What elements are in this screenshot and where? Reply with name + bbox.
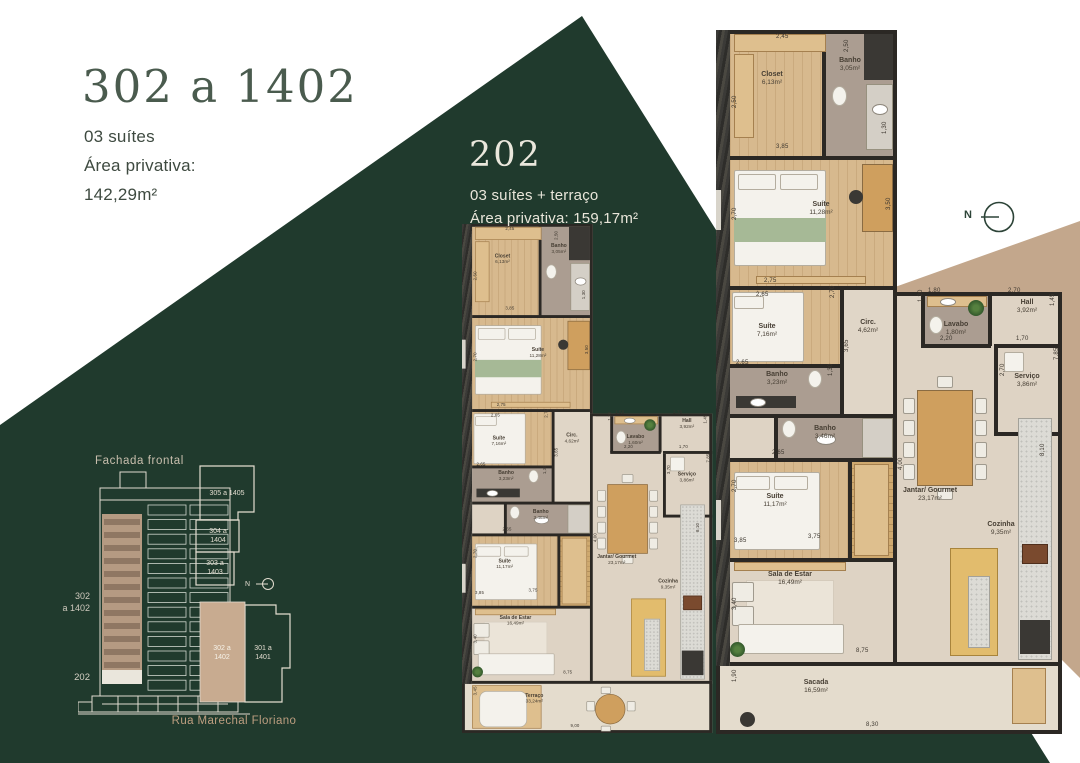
- room-area: 11,17m²: [740, 501, 810, 509]
- room-area: 16,49m²: [485, 621, 546, 627]
- dimension-label: 8,75: [563, 671, 572, 675]
- room-name: Cozinha: [644, 578, 692, 585]
- room-area: 16,49m²: [748, 579, 832, 587]
- chair: [649, 522, 658, 534]
- unit-302-area-label: Área privativa:: [84, 151, 196, 180]
- wall: [921, 296, 925, 346]
- dimension-label: 1,20: [918, 290, 924, 302]
- wall: [472, 409, 590, 412]
- dimension-label: 2,50: [555, 231, 559, 240]
- elevation-window: [148, 607, 186, 617]
- room-label-terraco: Terraço33,24m²: [498, 693, 570, 706]
- dimension-label: 4,00: [594, 533, 598, 542]
- elevation-window: [148, 680, 186, 690]
- room-area: 6,13m²: [732, 79, 812, 87]
- room-label-banho-1: Banho3,05m²: [537, 243, 580, 256]
- dimension-label: 3,50: [585, 345, 589, 354]
- room-area: 11,28m²: [786, 209, 856, 217]
- window-slit: [462, 340, 466, 369]
- chair: [597, 538, 606, 550]
- elevation-window: [148, 666, 186, 676]
- unit-302-subtitle: 03 suítes Área privativa: 142,29m²: [84, 122, 196, 210]
- room-area: 9,35m²: [968, 529, 1034, 537]
- plant: [644, 419, 656, 431]
- wall: [994, 348, 998, 434]
- room-name: Circ.: [838, 318, 898, 327]
- dimension-label: 7,85: [706, 454, 710, 463]
- room-label-hall: Hall3,92m²: [666, 418, 708, 431]
- room-area: 23,17m²: [892, 495, 968, 503]
- dimension-label: 2,75: [497, 403, 506, 407]
- dimension-label: 8,10: [1040, 444, 1046, 456]
- dimension-label: 2,65: [476, 463, 485, 467]
- room-area: 4,62m²: [838, 327, 898, 335]
- chair: [597, 522, 606, 534]
- dimension-label: 1,30: [582, 290, 586, 299]
- wall: [663, 454, 666, 516]
- dimension-label: 2,70: [474, 549, 478, 558]
- room-label-suite-2: Suíte7,16m²: [474, 435, 525, 448]
- room-label-closet: Closet6,13m²: [474, 253, 532, 266]
- room-area: 9,35m²: [644, 585, 692, 591]
- sink: [872, 104, 888, 115]
- sofa: [738, 624, 844, 654]
- dimension-label: 2,65: [491, 413, 500, 417]
- washer: [1004, 352, 1024, 372]
- window-slit: [462, 564, 466, 593]
- room-area: 3,46m²: [516, 515, 567, 521]
- dimension-label: 2,70: [732, 480, 738, 492]
- dimension-label: 1,45: [1050, 294, 1056, 306]
- room-label-servico: Serviço3,86m²: [666, 471, 708, 484]
- dimension-label: 3,40: [474, 634, 478, 643]
- pillow: [504, 546, 529, 556]
- room-label-suite-1: Suíte11,28m²: [513, 347, 564, 360]
- wall: [921, 344, 991, 348]
- chair: [649, 538, 658, 550]
- dimension-label: 1,30: [543, 465, 547, 474]
- room-label-jantar-gourmet: Jantar/ Gourmet23,17m²: [589, 554, 644, 567]
- dimension-label: 3,85: [475, 591, 484, 595]
- bath-counter: [570, 263, 590, 311]
- room-area: 11,28m²: [513, 353, 564, 359]
- wall: [988, 296, 992, 346]
- keyplan-unit-302-highlight: [200, 602, 245, 702]
- wall: [730, 458, 893, 462]
- keyplan-north-letter: N: [245, 581, 250, 588]
- pillow: [508, 328, 535, 340]
- dimension-label: 2,50: [474, 271, 478, 280]
- room-name: Sacada: [766, 678, 866, 687]
- dimension-label: 3,75: [529, 588, 538, 592]
- room-label-suite-1: Suíte11,28m²: [786, 200, 856, 218]
- unit-202-subtitle: 03 suítes + terraço Área privativa: 159,…: [470, 184, 638, 231]
- north-compass: N: [940, 192, 1030, 249]
- room-label-sacada: Sacada16,59m²: [766, 678, 866, 696]
- dimension-label: 1,90: [732, 670, 738, 682]
- floor-plan-202: Closet6,13m²Banho3,05m²Suíte11,28m²Suíte…: [462, 224, 712, 734]
- plant: [968, 300, 984, 316]
- chair: [649, 490, 658, 502]
- room-area: 3,92m²: [666, 424, 708, 430]
- sofa: [478, 653, 555, 675]
- chair: [975, 464, 987, 480]
- dimension-label: 3,85: [734, 538, 746, 544]
- dimension-label: 2,65: [772, 450, 784, 456]
- wall: [848, 460, 852, 560]
- cooktop: [682, 651, 704, 676]
- exterior-wall-texture: [716, 30, 730, 666]
- oven: [1022, 544, 1048, 564]
- sink: [487, 490, 499, 497]
- room-area: 7,16m²: [732, 331, 802, 339]
- wall: [663, 451, 712, 454]
- room-label-banho-2: Banho3,23m²: [481, 470, 532, 483]
- washer: [670, 457, 684, 471]
- planter: [740, 712, 755, 727]
- room-area: 11,17m²: [479, 565, 530, 571]
- key-plan: N 305 a 1405 304 a 1404 303 a 1403 302 a…: [192, 462, 302, 710]
- round-table: [595, 694, 625, 724]
- dimension-label: 2,75: [764, 278, 776, 284]
- toilet: [832, 86, 847, 106]
- room-label-sala-de-estar: Sala de Estar16,49m²: [485, 614, 546, 627]
- room-area: 1,80m²: [926, 329, 986, 337]
- island-counter: [644, 619, 660, 671]
- room-area: 3,05m²: [537, 249, 580, 255]
- room-label-banho-2: Banho3,23m²: [742, 370, 812, 388]
- dimension-label: 3,85: [505, 306, 514, 310]
- dimension-label: 1,80: [928, 288, 940, 294]
- dimension-label: 1,50: [615, 411, 624, 415]
- chair: [975, 398, 987, 414]
- keyplan-unit-304: [196, 520, 239, 552]
- dimension-label: 1,70: [679, 445, 688, 449]
- room-label-cozinha: Cozinha9,35m²: [644, 578, 692, 591]
- chair: [903, 442, 915, 458]
- shower: [568, 505, 590, 534]
- window-slit: [716, 190, 721, 230]
- keyplan-label-305: 305 a 1405: [209, 490, 244, 497]
- room-name: Sala de Estar: [748, 570, 832, 579]
- room-area: 3,05m²: [820, 65, 880, 73]
- bath-counter: [866, 84, 893, 150]
- dimension-label: 1,70: [1016, 336, 1028, 342]
- dimension-label: 3,65: [555, 448, 559, 457]
- pillow: [476, 546, 501, 556]
- wall: [610, 451, 661, 454]
- chair: [586, 701, 595, 711]
- dimension-label: 1,20: [608, 412, 612, 421]
- brochure-page: 302 a 1402 03 suítes Área privativa: 142…: [0, 0, 1080, 763]
- room-name: Banho: [790, 424, 860, 433]
- north-letter: N: [964, 209, 972, 221]
- dimension-label: 4,00: [898, 458, 904, 470]
- dimension-label: 2,65: [502, 528, 511, 532]
- dimension-label: 2,45: [776, 34, 788, 40]
- sink: [940, 298, 956, 306]
- room-name: Banho: [820, 56, 880, 65]
- circulation-floor: [842, 288, 893, 416]
- dimension-label: 2,50: [732, 96, 738, 108]
- room-name: Suíte: [740, 492, 810, 501]
- elevation-window: [148, 622, 186, 632]
- dimension-label: 2,70: [544, 409, 548, 418]
- chair: [597, 506, 606, 518]
- dimension-label: 1,30: [828, 364, 834, 376]
- bed-throw: [734, 218, 826, 242]
- room-label-banho-3: Banho3,46m²: [790, 424, 860, 442]
- room-name: Terraço: [498, 693, 570, 700]
- dimension-label: 3,45: [474, 686, 478, 695]
- room-label-sala-de-estar: Sala de Estar16,49m²: [748, 570, 832, 588]
- chair: [903, 420, 915, 436]
- dimension-label: 2,70: [732, 208, 738, 220]
- elevation-window: [148, 593, 186, 603]
- wardrobe: [562, 538, 587, 605]
- unit-202-title: 202: [469, 138, 542, 173]
- cooktop: [1020, 620, 1050, 654]
- unit-302-area-value: 142,29m²: [84, 180, 196, 209]
- shower: [862, 418, 893, 458]
- wall: [557, 535, 560, 607]
- dimension-label: 2,50: [844, 40, 850, 52]
- elevation-window: [148, 549, 186, 559]
- room-area: 4,62m²: [550, 439, 593, 445]
- svg-text:304 a: 304 a: [209, 528, 227, 535]
- svg-text:301 a: 301 a: [254, 645, 272, 652]
- chair: [627, 701, 636, 711]
- room-area: 3,23m²: [481, 476, 532, 482]
- dimension-label: 8,75: [856, 648, 868, 654]
- room-name: Suíte: [513, 347, 564, 354]
- svg-text:1403: 1403: [207, 569, 223, 576]
- dimension-label: 2,70: [474, 352, 478, 361]
- dimension-label: 2,70: [673, 411, 682, 415]
- pillow: [738, 174, 776, 190]
- wall: [472, 315, 590, 318]
- room-area: 3,86m²: [666, 478, 708, 484]
- plant: [472, 666, 483, 677]
- dimension-label: 2,70: [1008, 288, 1020, 294]
- room-name: Lavabo: [926, 320, 986, 329]
- chair: [649, 506, 658, 518]
- room-label-suite-2: Suíte7,16m²: [732, 322, 802, 340]
- wall: [730, 156, 893, 160]
- svg-text:302 a: 302 a: [213, 645, 231, 652]
- dimension-label: 2,20: [940, 336, 952, 342]
- dimension-label: 3,50: [886, 198, 892, 210]
- plant: [730, 642, 745, 657]
- elevation-202-band: [102, 670, 142, 684]
- room-label-circ: Circ.4,62m²: [550, 432, 593, 445]
- room-label-suite-3: Suíte11,17m²: [479, 558, 530, 571]
- room-area: 33,24m²: [498, 699, 570, 705]
- room-area: 1,60m²: [614, 440, 657, 446]
- elevation-window: [148, 520, 186, 530]
- facade-label: Fachada frontal: [95, 455, 184, 467]
- elevation-window: [148, 563, 186, 573]
- room-label-closet: Closet6,13m²: [732, 70, 812, 88]
- dimension-label: 3,85: [776, 144, 788, 150]
- wall: [610, 416, 613, 452]
- svg-text:1404: 1404: [210, 537, 226, 544]
- pillow: [780, 174, 818, 190]
- elevation-unit-range-label: 302 a 1402: [52, 590, 90, 614]
- chair: [903, 398, 915, 414]
- elevation-window: [148, 505, 186, 515]
- room-name: Suíte: [732, 322, 802, 331]
- floor-seam: [897, 296, 901, 662]
- elevation-window: [148, 636, 186, 646]
- dimension-label: 8,10: [696, 523, 700, 532]
- room-label-jantar-gourmet: Jantar/ Gourmet23,17m²: [892, 486, 968, 504]
- room-area: 7,16m²: [474, 442, 525, 448]
- room-label-banho-1: Banho3,05m²: [820, 56, 880, 74]
- sink: [750, 398, 766, 407]
- room-name: Cozinha: [968, 520, 1034, 529]
- dimension-label: 3,70: [667, 465, 671, 474]
- room-name: Suíte: [786, 200, 856, 209]
- dimension-label: 3,40: [732, 598, 738, 610]
- room-area: 23,17m²: [589, 560, 644, 566]
- chair: [975, 442, 987, 458]
- dining-table: [607, 484, 647, 553]
- room-label-lavabo: Lavabo1,80m²: [926, 320, 986, 338]
- room-label-suite-3: Suíte11,17m²: [740, 492, 810, 510]
- elevation-window: [148, 534, 186, 544]
- room-label-banho-3: Banho3,46m²: [516, 509, 567, 522]
- room-name: Hall: [998, 298, 1056, 307]
- room-name: Banho: [742, 370, 812, 379]
- street-name: Rua Marechal Floriano: [150, 715, 318, 727]
- chair: [903, 464, 915, 480]
- unit-202-area: Área privativa: 159,17m²: [470, 207, 638, 230]
- wall: [472, 533, 590, 536]
- sink: [624, 418, 636, 424]
- room-area: 3,23m²: [742, 379, 812, 387]
- chair: [597, 490, 606, 502]
- pillow: [736, 476, 770, 490]
- toilet: [546, 264, 557, 278]
- dimension-label: 3,65: [844, 340, 850, 352]
- elevation-window: [148, 651, 186, 661]
- room-area: 6,13m²: [474, 259, 532, 265]
- room-label-hall: Hall3,92m²: [998, 298, 1056, 316]
- bed-throw: [475, 360, 542, 377]
- balcony-floor: [716, 662, 1062, 734]
- room-name: Jantar/ Gourmet: [892, 486, 968, 495]
- svg-text:1401: 1401: [255, 654, 271, 661]
- room-label-lavabo: Lavabo1,60m²: [614, 434, 657, 447]
- exterior-wall-texture: [462, 224, 472, 684]
- svg-text:1402: 1402: [214, 654, 230, 661]
- dimension-label: 1,30: [882, 122, 888, 134]
- chair: [601, 687, 611, 694]
- dining-table: [917, 390, 973, 486]
- room-label-circ: Circ.4,62m²: [838, 318, 898, 336]
- unit-202-suites: 03 suítes + terraço: [470, 184, 638, 207]
- svg-text:303 a: 303 a: [206, 560, 224, 567]
- dimension-label: 7,85: [1054, 348, 1060, 360]
- wall: [840, 288, 844, 416]
- pillow: [478, 328, 505, 340]
- dimension-label: 9,00: [570, 724, 579, 728]
- unit-302-suites: 03 suítes: [84, 122, 196, 151]
- wall: [994, 344, 1062, 348]
- island-counter: [968, 576, 990, 648]
- unit-302-title: 302 a 1402: [82, 64, 358, 109]
- room-area: 16,59m²: [766, 687, 866, 695]
- chair: [937, 376, 953, 388]
- bath-counter: [736, 396, 796, 408]
- dimension-label: 2,70: [830, 286, 836, 298]
- wall: [659, 416, 662, 452]
- wall: [730, 286, 893, 290]
- dimension-label: 2,65: [736, 360, 748, 366]
- sink: [575, 278, 587, 286]
- north-compass-icon: [940, 192, 1030, 244]
- dimension-label: 1,45: [703, 415, 707, 424]
- elevation-window: [148, 578, 186, 588]
- room-area: 3,92m²: [998, 307, 1056, 315]
- chair: [601, 726, 611, 732]
- room-name: Serviço: [998, 372, 1056, 381]
- elevation-202-label: 202: [72, 672, 90, 683]
- dimension-label: 2,65: [756, 292, 768, 298]
- dimension-label: 2,20: [624, 445, 633, 449]
- window-slit: [716, 500, 721, 540]
- floor-plan-302-1402: Closet6,13m²Banho3,05m²Suíte11,28m²Suíte…: [716, 30, 1062, 736]
- floor-seam: [593, 416, 596, 681]
- dimension-label: 8,30: [866, 722, 878, 728]
- room-name: Closet: [732, 70, 812, 79]
- pillow: [774, 476, 808, 490]
- bench: [1012, 668, 1046, 724]
- wardrobe: [854, 464, 889, 556]
- room-area: 3,46m²: [790, 433, 860, 441]
- chair: [622, 474, 634, 483]
- room-label-servico: Serviço3,86m²: [998, 372, 1056, 390]
- dimension-label: 2,70: [1000, 364, 1006, 376]
- room-area: 3,86m²: [998, 381, 1056, 389]
- dimension-label: 3,75: [808, 534, 820, 540]
- chair: [975, 420, 987, 436]
- oven: [683, 596, 702, 610]
- room-label-cozinha: Cozinha9,35m²: [968, 520, 1034, 538]
